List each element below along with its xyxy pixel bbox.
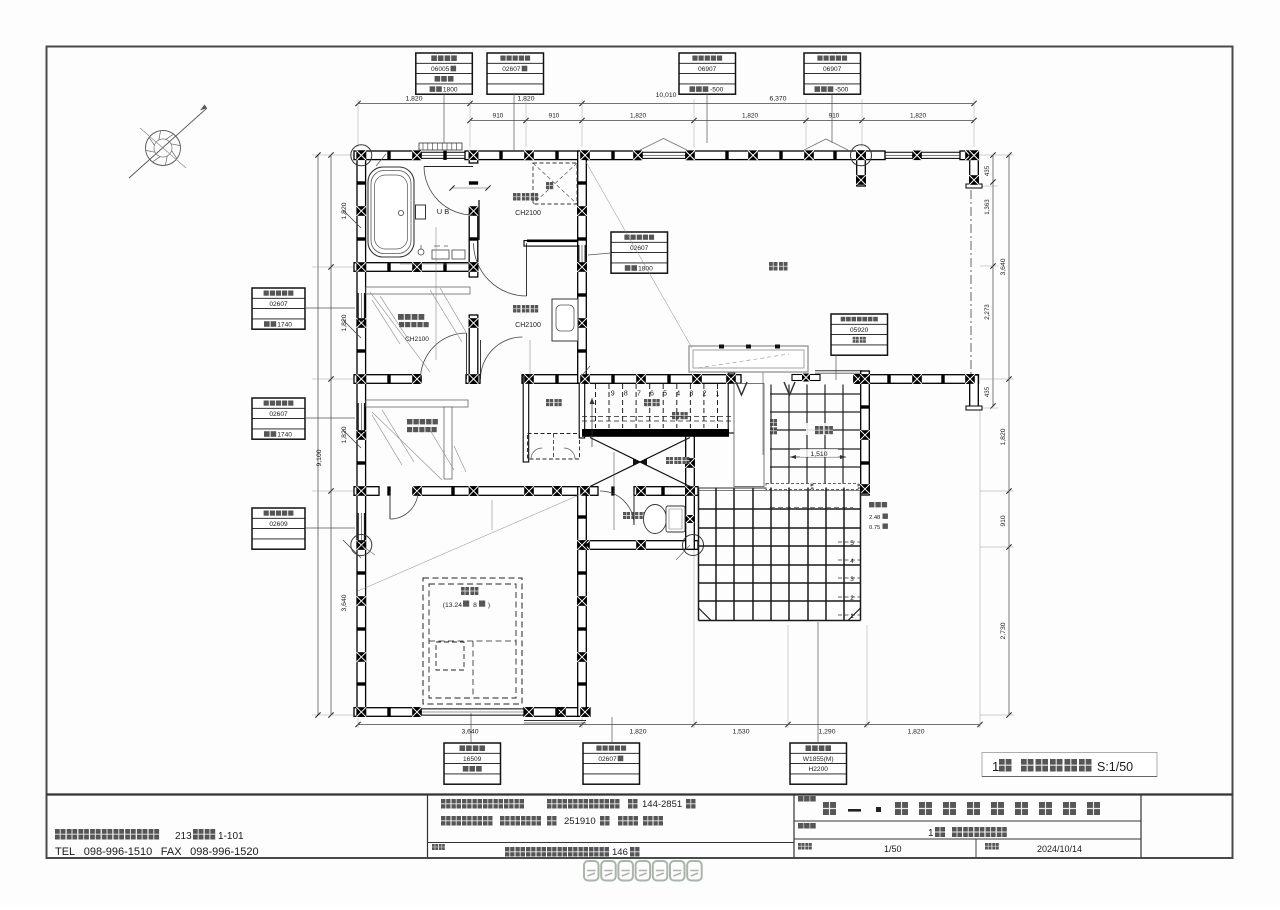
svg-text:CH2100: CH2100	[515, 322, 541, 329]
svg-text:1,363: 1,363	[984, 199, 991, 215]
svg-text:1: 1	[992, 759, 999, 774]
svg-text:06907: 06907	[698, 66, 717, 73]
svg-text:1: 1	[850, 613, 854, 620]
svg-text:5: 5	[850, 540, 854, 547]
svg-text:1,820: 1,820	[341, 202, 348, 219]
svg-text:3,640: 3,640	[341, 594, 348, 611]
svg-text:S:1/50: S:1/50	[1097, 760, 1133, 774]
svg-text:2.48: 2.48	[869, 515, 880, 521]
svg-text:6: 6	[650, 391, 654, 398]
svg-text:435: 435	[984, 165, 991, 176]
svg-text:2,273: 2,273	[984, 304, 991, 320]
svg-text:2: 2	[702, 391, 706, 398]
svg-text:3: 3	[850, 576, 854, 583]
svg-text:3,640: 3,640	[1000, 258, 1007, 275]
svg-text:06005: 06005	[431, 66, 450, 73]
svg-text:910: 910	[829, 113, 840, 120]
svg-text:): )	[488, 602, 490, 609]
svg-text:2,730: 2,730	[1000, 622, 1007, 639]
svg-text:-500: -500	[710, 87, 724, 94]
svg-text:3: 3	[689, 391, 693, 398]
svg-text:0.75: 0.75	[869, 525, 880, 531]
svg-text:1,820: 1,820	[1000, 428, 1007, 445]
svg-text:8: 8	[473, 602, 477, 609]
svg-text:02609: 02609	[269, 521, 288, 528]
svg-text:1,820: 1,820	[907, 729, 924, 736]
svg-text:1/50: 1/50	[884, 844, 902, 854]
svg-text:7: 7	[637, 391, 641, 398]
svg-text:251910: 251910	[564, 816, 596, 827]
svg-text:02607: 02607	[630, 245, 649, 252]
svg-text:213: 213	[175, 831, 192, 842]
svg-text:8: 8	[624, 391, 628, 398]
svg-text:146: 146	[612, 847, 628, 858]
svg-text:4: 4	[850, 558, 854, 565]
svg-text:1740: 1740	[277, 321, 292, 328]
svg-text:1,510: 1,510	[810, 451, 827, 458]
svg-text:3,640: 3,640	[461, 729, 478, 736]
svg-text:1,820: 1,820	[341, 314, 348, 331]
svg-text:1800: 1800	[443, 87, 458, 94]
svg-text:1,820: 1,820	[910, 113, 926, 120]
svg-text:1: 1	[716, 391, 720, 398]
svg-text:05920: 05920	[850, 327, 869, 334]
svg-text:2: 2	[850, 595, 854, 602]
svg-text:02607: 02607	[269, 301, 288, 308]
svg-text:1,820: 1,820	[405, 96, 422, 103]
svg-text:2024/10/14: 2024/10/14	[1037, 844, 1082, 854]
svg-text:1740: 1740	[277, 431, 292, 438]
svg-text:1,820: 1,820	[341, 426, 348, 443]
svg-text:10,010: 10,010	[656, 92, 677, 99]
svg-text:910: 910	[1000, 515, 1007, 527]
svg-text:02607: 02607	[269, 411, 288, 418]
svg-text:435: 435	[984, 386, 991, 397]
svg-text:1,820: 1,820	[517, 96, 534, 103]
svg-text:9,100: 9,100	[316, 449, 323, 466]
svg-text:144-2851: 144-2851	[642, 799, 682, 810]
svg-text:H2200: H2200	[808, 766, 828, 773]
svg-text:(13.24: (13.24	[443, 602, 462, 609]
svg-text:6,370: 6,370	[769, 96, 786, 103]
svg-text:1-101: 1-101	[218, 831, 244, 842]
svg-text:910: 910	[493, 113, 504, 120]
svg-text:1: 1	[928, 828, 934, 839]
svg-text:-500: -500	[835, 87, 849, 94]
svg-text:910: 910	[549, 113, 560, 120]
svg-text:TEL 098-996-1510 FAX 098-99: TEL 098-996-1510 FAX 098-996-1520	[55, 846, 259, 858]
svg-text:06907: 06907	[823, 66, 842, 73]
svg-text:1,820: 1,820	[629, 729, 646, 736]
svg-text:W1855(M): W1855(M)	[803, 756, 834, 763]
svg-text:1,820: 1,820	[742, 113, 758, 120]
svg-text:1,820: 1,820	[630, 113, 646, 120]
svg-text:CH2100: CH2100	[515, 210, 541, 217]
svg-text:4: 4	[676, 391, 680, 398]
svg-text:5: 5	[663, 391, 667, 398]
svg-text:16509: 16509	[463, 756, 482, 763]
svg-text:02607: 02607	[502, 66, 521, 73]
svg-text:1,290: 1,290	[818, 729, 835, 736]
svg-text:1,530: 1,530	[732, 729, 749, 736]
svg-text:9: 9	[611, 391, 615, 398]
svg-text:02607: 02607	[598, 756, 617, 763]
